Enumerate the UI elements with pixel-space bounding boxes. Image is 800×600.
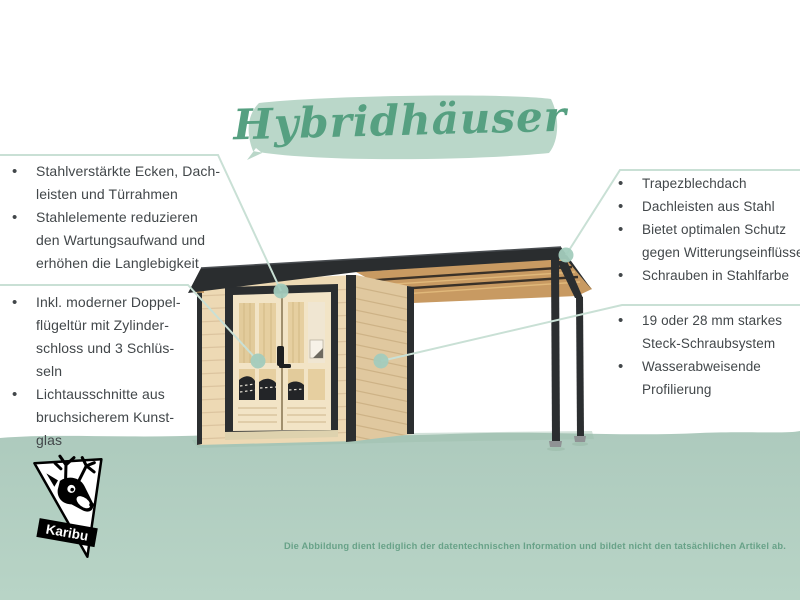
feature-list-bottom-left: Inkl. moderner Doppel- flügeltür mit Zyl… [8, 291, 238, 452]
corner-trim-front-right [346, 275, 356, 442]
feature-item: Dachleisten aus Stahl [614, 195, 800, 218]
feature-item: Stahlverstärkte Ecken, Dach- leisten und… [8, 160, 258, 206]
feature-item: Trapezblechdach [614, 172, 800, 195]
corner-trim-rear [407, 286, 414, 434]
feature-list-top-right: Trapezblechdach Dachleisten aus Stahl Bi… [614, 172, 800, 287]
feature-list-bottom-right: 19 oder 28 mm starkes Steck-Schraubsyste… [614, 309, 800, 401]
disclaimer-text: Die Abbildung dient lediglich der datent… [284, 541, 786, 551]
double-door [225, 284, 338, 440]
feature-list-top-left: Stahlverstärkte Ecken, Dach- leisten und… [8, 160, 258, 275]
callout-dot-side-wall [374, 354, 389, 369]
feature-item: Wasserabweisende Profilierung [614, 355, 800, 401]
feature-item: Inkl. moderner Doppel- flügeltür mit Zyl… [8, 291, 238, 383]
ground [0, 431, 800, 600]
feature-item: Lichtausschnitte aus bruchsicherem Kunst… [8, 383, 238, 452]
house-illustration [188, 247, 592, 451]
feature-item: 19 oder 28 mm starkes Steck-Schraubsyste… [614, 309, 800, 355]
feature-item: Bietet optimalen Schutz gegen Witterungs… [614, 218, 800, 264]
callout-dot-door-glass [251, 354, 266, 369]
feature-item: Stahlelemente reduzieren den Wartungsauf… [8, 206, 258, 275]
product-flyer: Karibu Hybridhäuser Stahlverstärkte Ecke… [0, 0, 800, 600]
callout-dot-door-frame [274, 284, 289, 299]
feature-item: Schrauben in Stahlfarbe [614, 264, 800, 287]
callout-dot-roof-corner [559, 248, 574, 263]
